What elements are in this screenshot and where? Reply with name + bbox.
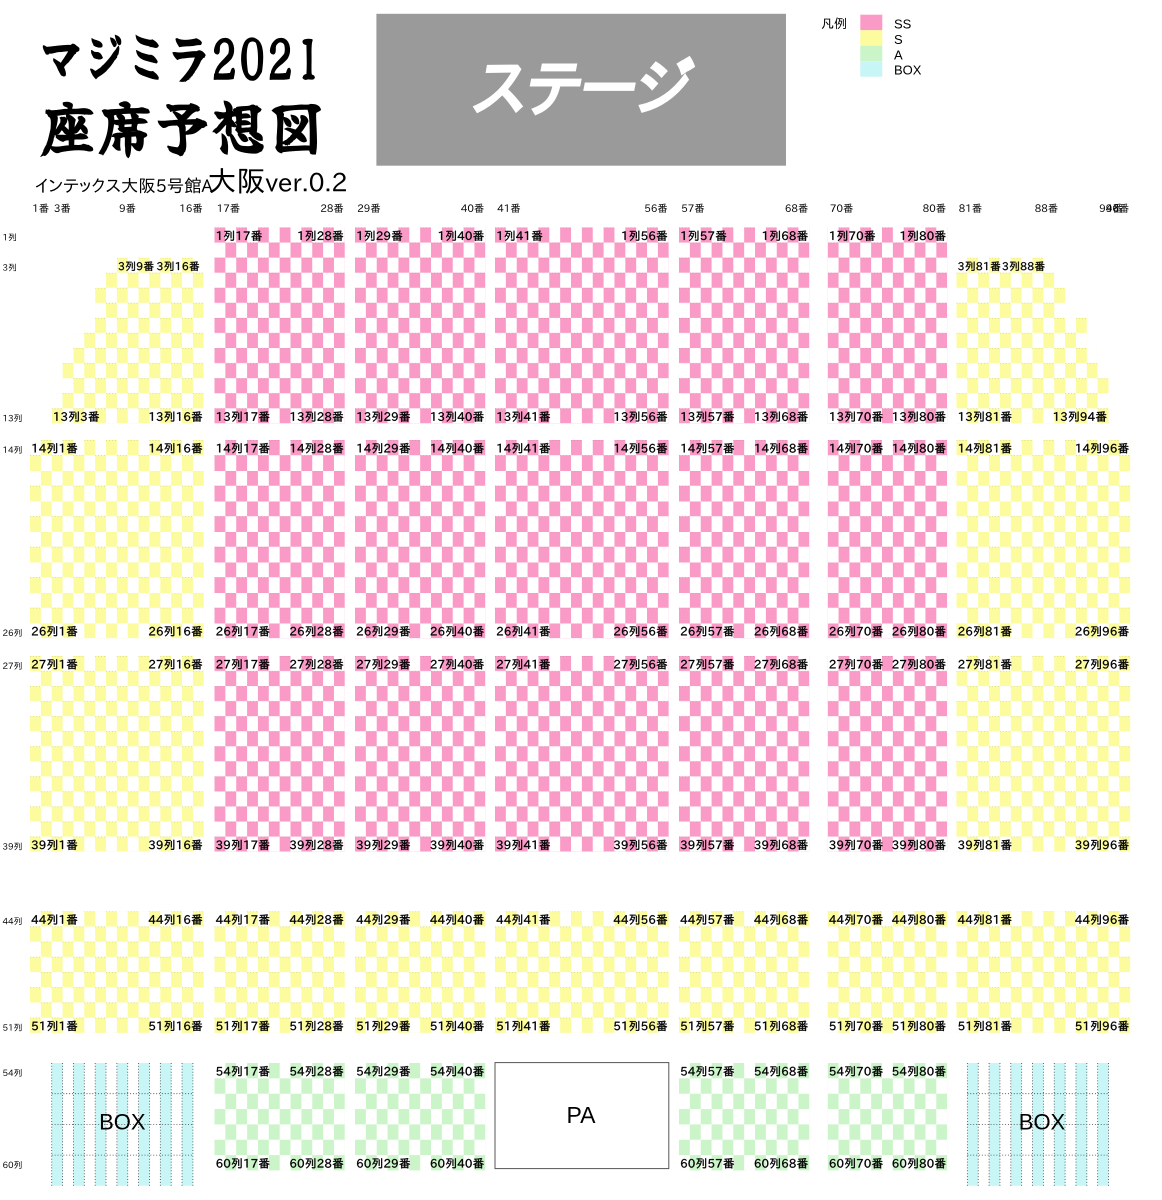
svg-text:BOX: BOX	[99, 1110, 146, 1135]
svg-text:SS: SS	[894, 16, 912, 31]
svg-text:A: A	[894, 47, 903, 62]
svg-text:BOX: BOX	[894, 62, 922, 77]
svg-text:PA: PA	[567, 1102, 597, 1128]
svg-text:BOX: BOX	[1019, 1110, 1066, 1135]
svg-text:S: S	[894, 32, 903, 47]
